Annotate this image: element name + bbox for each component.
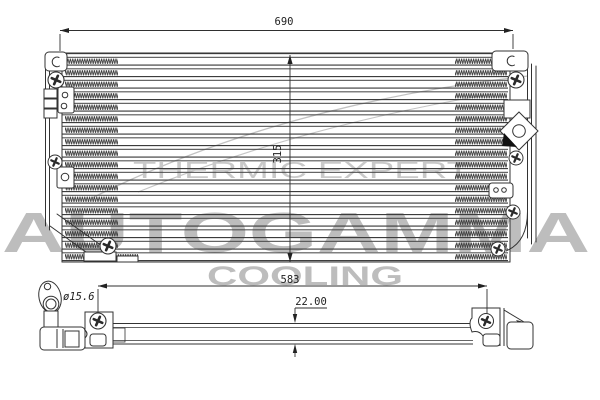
mounting-foot-left-2: [117, 256, 138, 262]
arrow-right-icon: [478, 284, 487, 289]
dim-depth: 22.00: [293, 296, 327, 357]
dim-mounting-span: 583: [98, 274, 487, 313]
bottom-bar: [113, 324, 473, 345]
arrow-left-icon: [98, 284, 107, 289]
screw: [506, 205, 520, 219]
arrow-right-icon: [504, 28, 513, 33]
screw: [491, 242, 505, 256]
core-fins-left: [65, 53, 118, 262]
arrow-up-icon: [293, 344, 297, 353]
dim-overall-width-label: 690: [275, 16, 294, 28]
arrow-down-icon: [293, 314, 297, 323]
end-block: [507, 322, 533, 349]
core-tubes: [62, 53, 508, 262]
screw: [90, 313, 106, 329]
screw: [100, 238, 116, 254]
arrow-left-icon: [60, 28, 69, 33]
condenser-technical-drawing: THERMIC EXPERT AUTOGAMMA COOLING: [0, 0, 600, 400]
screw: [48, 155, 62, 169]
inlet-fitting-assembly: [36, 279, 125, 350]
screw: [509, 151, 523, 165]
screw: [508, 72, 524, 88]
watermark-subtitle: COOLING: [207, 261, 403, 291]
core-fins-right: [455, 53, 507, 262]
right-end-bracket: [470, 308, 533, 349]
screw: [478, 313, 493, 328]
dim-mounting-span-label: 583: [281, 274, 300, 286]
dim-depth-label: 22.00: [295, 296, 327, 308]
fitting-diameter-label: ø15.6: [63, 291, 95, 303]
dim-overall-width: 690: [60, 16, 513, 51]
screw: [48, 72, 64, 88]
condenser-front-view: [44, 51, 538, 262]
drawing-canvas: THERMIC EXPERT AUTOGAMMA COOLING: [0, 0, 600, 400]
dim-core-height-label: 315: [272, 145, 284, 164]
